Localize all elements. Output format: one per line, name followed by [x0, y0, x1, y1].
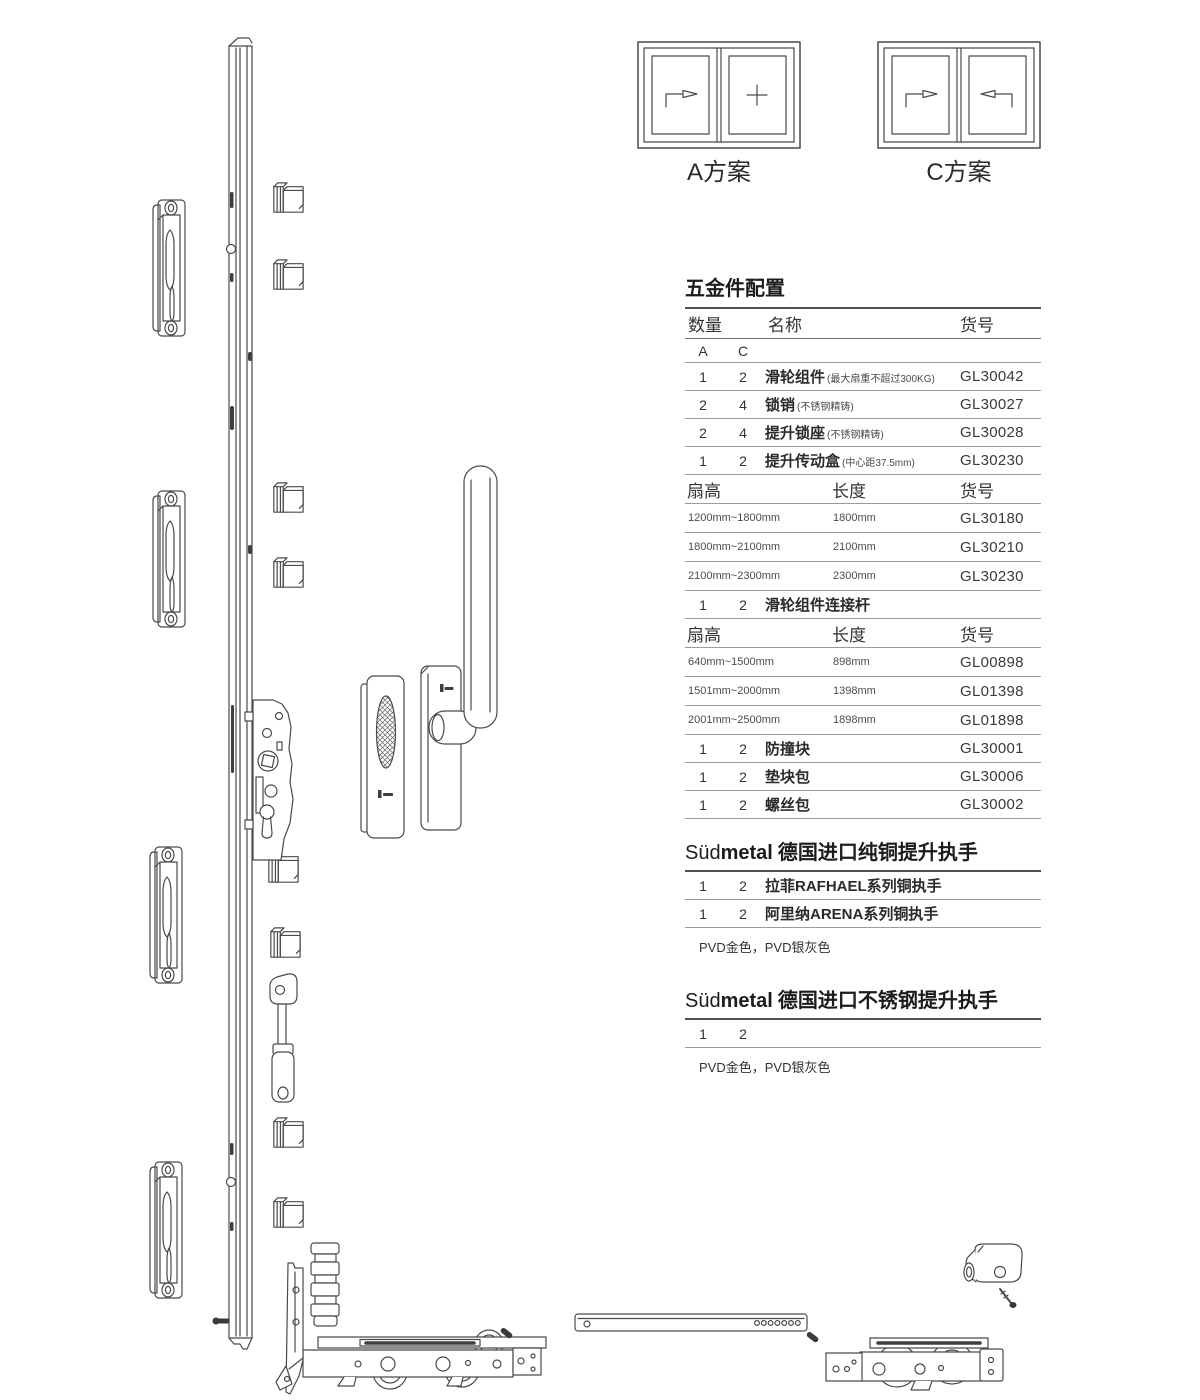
qty-c: 2 [721, 797, 765, 813]
table-row: 1 2 拉菲RAFHAEL系列铜执手 [685, 872, 1041, 900]
col-code: 货号 [960, 621, 1041, 646]
slide-arrow-left-icon [981, 91, 1012, 108]
fan-height-range: 1501mm~2000mm [685, 685, 833, 697]
catalog-page: A方案 C方案 五金件配置 数量 名称 货号 A C 1 2 滑轮组件(最大扇重… [0, 0, 1200, 1400]
part-name: 防撞块 [765, 738, 810, 759]
qty-a: 1 [685, 769, 721, 785]
qty-c: 2 [721, 369, 765, 385]
keeper-plate-drawing [150, 1162, 182, 1298]
table-row: 640mm~1500mm 898mm GL00898 [685, 648, 1041, 677]
handle-name: 阿里纳ARENA系列铜执手 [765, 903, 1041, 924]
qty-a: 1 [685, 1026, 721, 1042]
part-code: GL01398 [960, 683, 1041, 700]
qty-a: 1 [685, 453, 721, 469]
end-cap-drawing [964, 1244, 1022, 1282]
part-code: GL30027 [960, 396, 1041, 413]
steel-section-title: Südmetal德国进口不锈钢提升执手 [685, 984, 1041, 1020]
brass-handle-section: Südmetal德国进口纯铜提升执手 1 2 拉菲RAFHAEL系列铜执手 1 … [685, 836, 1041, 956]
gas-strut-drawing [270, 974, 297, 1102]
qty-a: 2 [685, 397, 721, 413]
size-header-row: 扇高 长度 货号 [685, 475, 1041, 504]
lock-pin-block-drawing [274, 558, 303, 587]
qty-c: 4 [721, 425, 765, 441]
fan-height-range: 1800mm~2100mm [685, 541, 833, 553]
scheme-a-diagram [638, 42, 800, 148]
table-row: 1 2 [685, 1020, 1041, 1048]
part-name: 提升锁座 [765, 422, 825, 443]
fan-height-range: 2100mm~2300mm [685, 570, 833, 582]
table-row: 1501mm~2000mm 1398mm GL01398 [685, 677, 1041, 706]
table-row: 1 2 螺丝包 GL30002 [685, 791, 1041, 819]
col-fan-height: 扇高 [685, 477, 832, 502]
length-value: 898mm [833, 656, 960, 668]
table-row: 1 2 防撞块 GL30001 [685, 735, 1041, 763]
length-value: 1898mm [833, 714, 960, 726]
fixed-plus-icon [747, 85, 767, 105]
scheme-c-diagram [878, 42, 1040, 148]
roller-carriage-drawing [826, 1338, 1003, 1390]
table-row: 1800mm~2100mm 2100mm GL30210 [685, 533, 1041, 562]
part-note: (中心距37.5mm) [842, 454, 915, 469]
length-value: 2100mm [833, 541, 960, 553]
col-qty: 数量 [685, 311, 768, 336]
lock-pin-block-drawing [274, 1198, 303, 1227]
table-row: 1 2 滑轮组件连接杆 [685, 591, 1041, 619]
lift-handle-drawing [421, 466, 497, 830]
screw-drawing [806, 1331, 820, 1343]
qty-a-label: A [685, 343, 721, 359]
table-row: 2001mm~2500mm 1898mm GL01898 [685, 706, 1041, 735]
qty-a: 1 [685, 597, 721, 613]
qty-a: 1 [685, 797, 721, 813]
qty-a: 1 [685, 369, 721, 385]
scheme-a-label: A方案 [638, 152, 800, 187]
part-code: GL30230 [960, 452, 1041, 469]
steel-title-text: 德国进口不锈钢提升执手 [778, 990, 998, 1012]
lock-pin-block-drawing [274, 1118, 303, 1147]
qty-subheader-row: A C [685, 339, 1041, 363]
part-name: 螺丝包 [765, 794, 810, 815]
qty-c: 2 [721, 878, 765, 894]
brass-title-text: 德国进口纯铜提升执手 [778, 842, 978, 864]
qty-a: 1 [685, 906, 721, 922]
scheme-c-label: C方案 [878, 152, 1040, 187]
part-name: 锁销 [765, 394, 795, 415]
col-name: 名称 [768, 311, 960, 336]
col-code: 货号 [960, 311, 1041, 336]
lock-pin-block-drawing [274, 260, 303, 289]
part-code: GL30230 [960, 568, 1041, 585]
hardware-table: 五金件配置 数量 名称 货号 A C 1 2 滑轮组件(最大扇重不超过300KG… [685, 272, 1041, 819]
col-length: 长度 [832, 621, 960, 646]
hardware-table-title: 五金件配置 [685, 272, 1041, 309]
corner-drive-drawing [276, 1243, 546, 1394]
lock-pin-block-drawing [274, 483, 303, 512]
handle-name: 拉菲RAFHAEL系列铜执手 [765, 875, 1041, 896]
screw-drawing [1000, 1289, 1017, 1308]
table-row: 1200mm~1800mm 1800mm GL30180 [685, 504, 1041, 533]
col-fan-height: 扇高 [685, 621, 832, 646]
length-value: 1398mm [833, 685, 960, 697]
keeper-plate-drawing [153, 491, 185, 627]
table-header-row: 数量 名称 货号 [685, 309, 1041, 339]
qty-a: 1 [685, 741, 721, 757]
qty-a: 2 [685, 425, 721, 441]
keeper-plate-drawing [150, 847, 182, 983]
lock-pin-block-drawing [271, 928, 300, 957]
part-code: GL30042 [960, 368, 1041, 385]
col-code: 货号 [960, 477, 1041, 502]
fan-height-range: 2001mm~2500mm [685, 714, 833, 726]
table-row: 1 2 阿里纳ARENA系列铜执手 [685, 900, 1041, 928]
part-name: 垫块包 [765, 766, 810, 787]
qty-c: 2 [721, 906, 765, 922]
steel-handle-section: Südmetal德国进口不锈钢提升执手 1 2 PVD金色，PVD银灰色 [685, 984, 1041, 1076]
screw-drawing [213, 1318, 230, 1325]
table-row: 1 2 垫块包 GL30006 [685, 763, 1041, 791]
brand-metal: metal [721, 990, 773, 1012]
qty-c-label: C [721, 343, 765, 359]
table-row: 2 4 锁销(不锈钢精铸) GL30027 [685, 391, 1041, 419]
pull-plate-drawing [361, 676, 404, 838]
slide-arrow-icon [666, 91, 697, 108]
part-code: GL30210 [960, 539, 1041, 556]
qty-c: 2 [721, 453, 765, 469]
connector-rod-drawing [575, 1314, 807, 1331]
part-code: GL00898 [960, 654, 1041, 671]
qty-c: 2 [721, 1026, 765, 1042]
qty-c: 4 [721, 397, 765, 413]
fan-height-range: 640mm~1500mm [685, 656, 833, 668]
qty-c: 2 [721, 769, 765, 785]
part-code: GL01898 [960, 712, 1041, 729]
table-row: 1 2 提升传动盒(中心距37.5mm) GL30230 [685, 447, 1041, 475]
qty-a: 1 [685, 878, 721, 894]
length-value: 2300mm [833, 570, 960, 582]
part-name: 滑轮组件连接杆 [765, 594, 870, 615]
part-note: (最大扇重不超过300KG) [827, 370, 935, 385]
qty-c: 2 [721, 597, 765, 613]
brand-metal: metal [721, 842, 773, 864]
part-code: GL30006 [960, 768, 1041, 785]
finish-note: PVD金色，PVD银灰色 [685, 928, 1041, 956]
length-value: 1800mm [833, 512, 960, 524]
lift-rail-drawing [227, 38, 253, 1349]
part-note: (不锈钢精铸) [797, 398, 854, 413]
table-row: 2 4 提升锁座(不锈钢精铸) GL30028 [685, 419, 1041, 447]
brand-sud: Süd [685, 842, 721, 864]
bumper-stack-drawing [311, 1243, 339, 1326]
qty-c: 2 [721, 741, 765, 757]
col-length: 长度 [832, 477, 960, 502]
keeper-plate-drawing [153, 200, 185, 336]
brand-sud: Süd [685, 990, 721, 1012]
finish-note: PVD金色，PVD银灰色 [685, 1048, 1041, 1076]
table-row: 1 2 滑轮组件(最大扇重不超过300KG) GL30042 [685, 363, 1041, 391]
table-row: 2100mm~2300mm 2300mm GL30230 [685, 562, 1041, 591]
part-name: 提升传动盒 [765, 450, 840, 471]
part-code: GL30028 [960, 424, 1041, 441]
slide-arrow-icon [906, 91, 937, 108]
part-note: (不锈钢精铸) [827, 426, 884, 441]
lock-pin-block-drawing [274, 183, 303, 212]
brass-section-title: Südmetal德国进口纯铜提升执手 [685, 836, 1041, 872]
part-code: GL30002 [960, 796, 1041, 813]
part-name: 滑轮组件 [765, 366, 825, 387]
part-code: GL30001 [960, 740, 1041, 757]
part-code: GL30180 [960, 510, 1041, 527]
fan-height-range: 1200mm~1800mm [685, 512, 833, 524]
size-header-row: 扇高 长度 货号 [685, 619, 1041, 648]
